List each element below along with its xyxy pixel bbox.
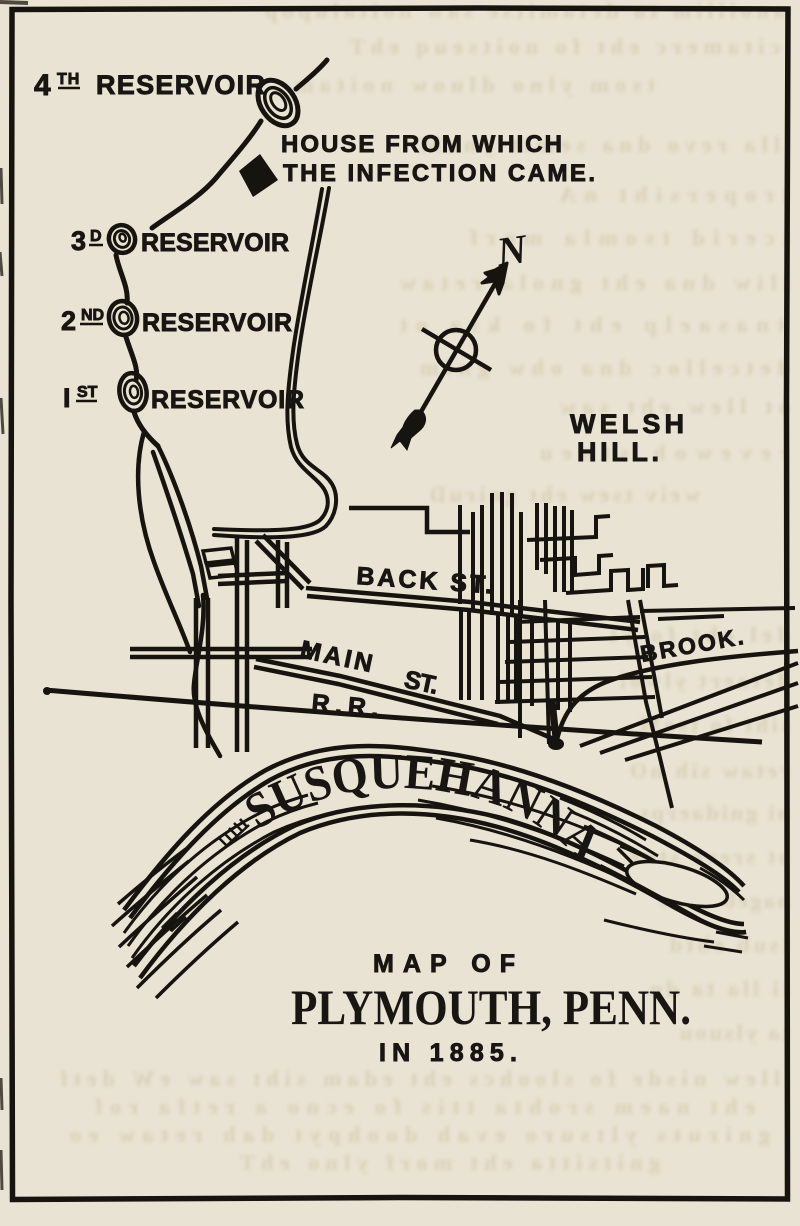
- svg-text:ST: ST: [77, 384, 98, 401]
- svg-text:D: D: [90, 228, 102, 245]
- svg-text:I: I: [63, 383, 72, 413]
- svg-text:ND: ND: [81, 307, 104, 324]
- svg-text:2: 2: [61, 306, 77, 336]
- svg-text:HOUSE FROM WHICH: HOUSE FROM WHICH: [281, 131, 562, 158]
- svg-text:PLYMOUTH, PENN.: PLYMOUTH, PENN.: [291, 979, 691, 1035]
- svg-text:RESERVOIR: RESERVOIR: [151, 386, 304, 414]
- svg-text:WELSH: WELSH: [570, 409, 684, 439]
- svg-text:IN 1885.: IN 1885.: [379, 1039, 521, 1067]
- svg-text:RESERVOIR: RESERVOIR: [141, 229, 289, 257]
- svg-text:tnasaelp eht fo ksa ot: tnasaelp eht fo ksa ot: [399, 312, 785, 337]
- svg-text:RESERVOIR: RESERVOIR: [142, 309, 292, 337]
- svg-text:4: 4: [34, 69, 53, 102]
- svg-text:RESERVOIR: RESERVOIR: [96, 70, 265, 100]
- svg-text:TH: TH: [57, 71, 80, 88]
- svg-text:3: 3: [71, 226, 87, 256]
- svg-text:HILL.: HILL.: [577, 437, 659, 467]
- svg-text:THE INFECTION CAME.: THE INFECTION CAME.: [283, 160, 595, 187]
